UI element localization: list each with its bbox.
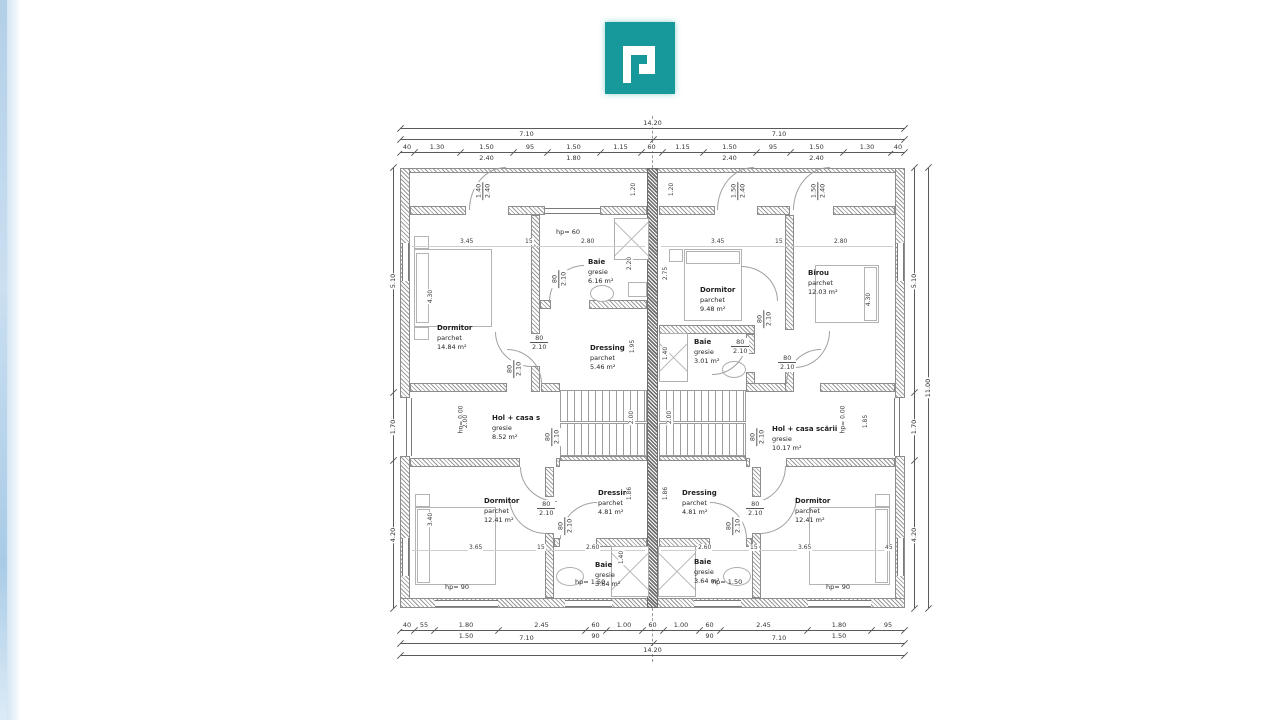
dim-interior: 1.20 <box>630 182 637 197</box>
door-size-label: 802.10 <box>755 310 773 328</box>
dim-interior: 15 <box>774 238 784 245</box>
room-label-dormitor: Dormitor parchet 12.41 m² <box>795 496 830 526</box>
dim-segment: 95 <box>756 152 790 153</box>
wall-segment <box>541 383 560 392</box>
dim-interior: 15 <box>749 544 759 551</box>
dim-segment: 60 <box>642 630 663 631</box>
dim-half-top: 7.10 <box>653 139 905 140</box>
dim-segment: 55 <box>414 630 434 631</box>
wall-segment <box>752 533 761 598</box>
door-size-label: 802.10 <box>550 270 568 288</box>
wall-segment <box>833 206 895 215</box>
dim-interior: 3.65 <box>797 544 812 551</box>
dim-interior: 1.86 <box>662 486 669 501</box>
wall-left-upper <box>400 168 410 398</box>
dim-segment: 95 <box>871 630 905 631</box>
wall-segment <box>410 458 520 467</box>
dim-interior: 1.40 <box>662 346 669 361</box>
dim-half-bottom: 7.10 <box>653 643 905 644</box>
nightstand-symbol <box>875 494 890 507</box>
dim-interior: 3.65 <box>468 544 483 551</box>
dim-segment: 1.30 <box>414 152 460 153</box>
shower-symbol <box>658 546 696 597</box>
wall-segment <box>746 383 786 392</box>
window-size-label: 1.502.40 <box>809 182 827 200</box>
wall-segment <box>659 206 715 215</box>
parapet-note: hp= 1.50 <box>712 578 742 586</box>
wall-segment <box>786 458 895 467</box>
construction-line <box>661 550 893 551</box>
dim-segment: 1.502.40 <box>460 152 513 153</box>
construction-line <box>412 550 645 551</box>
dim-segment: 1.502.40 <box>703 152 756 153</box>
dim-segment: 6090 <box>585 630 606 631</box>
dim-interior: 2.75 <box>662 266 669 281</box>
dim-segment: 1.00 <box>663 630 699 631</box>
dim-interior: 3.40 <box>427 512 434 527</box>
floor-plan: 14.20 7.10 7.10 40 1.30 1.502.40 95 1.50… <box>0 0 1280 720</box>
parapet-note: hp= 0.00 <box>839 405 846 435</box>
dim-interior: 2.60 <box>585 544 600 551</box>
room-label-dressing: Dressing parchet 4.81 m² <box>682 488 717 518</box>
parapet-note: hp= 90 <box>826 583 850 591</box>
dim-segment: 1.801.50 <box>434 630 498 631</box>
bay-window-symbol <box>894 398 900 456</box>
wall-right-lower <box>895 456 905 608</box>
wall-segment <box>554 538 560 547</box>
dim-half-bottom: 7.10 <box>400 643 653 644</box>
dim-interior: 1.95 <box>629 339 636 354</box>
window-symbol <box>435 600 498 607</box>
window-symbol <box>897 243 904 281</box>
room-label-hol: Hol + casa s gresie 8.52 m² <box>492 413 540 443</box>
door-size-label: 802.10 <box>746 500 764 518</box>
dim-interior: 2.80 <box>833 238 848 245</box>
wall-segment <box>659 456 746 461</box>
door-size-label: 802.10 <box>556 517 574 535</box>
wall-segment <box>410 383 507 392</box>
dim-interior: 4.30 <box>427 289 434 304</box>
window-symbol <box>694 600 741 607</box>
window-symbol <box>565 600 612 607</box>
window-symbol <box>897 538 904 576</box>
bed-pillow <box>686 251 740 264</box>
dim-segment: 1.15 <box>662 152 703 153</box>
door-arc <box>760 497 797 534</box>
nightstand-symbol <box>669 249 683 262</box>
room-label-dormitor: Dormitor parchet 14.84 m² <box>437 323 472 353</box>
dim-segment: 60 <box>641 152 662 153</box>
door-size-label: 802.10 <box>505 360 523 378</box>
nightstand-symbol <box>414 236 429 249</box>
window-size-label: 1.402.40 <box>474 182 492 200</box>
dim-interior: 15 <box>536 544 546 551</box>
door-size-label: 802.10 <box>537 500 555 518</box>
wall-segment <box>757 206 790 215</box>
wall-segment <box>508 206 545 215</box>
dim-segment: 4.20 <box>914 461 915 608</box>
bay-window-symbol <box>406 398 412 456</box>
construction-line <box>412 246 645 247</box>
dim-interior: 2.80 <box>580 238 595 245</box>
dim-interior: 2.20 <box>626 256 633 271</box>
dim-segment: 5.10 <box>914 168 915 393</box>
wall-segment <box>820 383 895 392</box>
nightstand-symbol <box>415 494 430 507</box>
window-size-label: 1.502.40 <box>729 182 747 200</box>
room-label-dormitor: Dormitor parchet 12.41 m² <box>484 496 519 526</box>
parapet-note: hp= 60 <box>556 228 580 236</box>
dim-segment: 1.501.80 <box>547 152 600 153</box>
nightstand-symbol <box>414 327 429 340</box>
window-symbol <box>402 538 409 576</box>
door-size-label: 802.10 <box>530 334 548 352</box>
wall-right-upper <box>895 168 905 398</box>
dim-half-top: 7.10 <box>400 139 653 140</box>
dim-overall-right: 11.00 <box>928 168 929 608</box>
dim-interior: 45 <box>884 544 894 551</box>
dim-segment: 1.801.50 <box>807 630 871 631</box>
parapet-note: hp= 90 <box>445 583 469 591</box>
dim-interior: 1.20 <box>668 182 675 197</box>
dim-overall-top: 14.20 <box>400 128 905 129</box>
dim-segment: 1.502.40 <box>790 152 843 153</box>
door-size-label: 802.10 <box>778 354 796 372</box>
dim-segment: 40 <box>891 152 905 153</box>
door-size-label: 802.10 <box>724 517 742 535</box>
wall-segment <box>545 533 554 598</box>
room-label-dressing: Dressing parchet 5.46 m² <box>590 343 625 373</box>
dim-segment: 6090 <box>699 630 720 631</box>
dim-interior: 4.30 <box>865 292 872 307</box>
window-symbol <box>545 208 600 214</box>
dim-interior: 2.60 <box>697 544 712 551</box>
door-arc <box>741 266 778 301</box>
dim-interior: 2.00 <box>628 410 635 425</box>
window-symbol <box>402 243 409 281</box>
room-label-baie: Baie gresie 6.16 m² <box>588 257 613 287</box>
dim-interior: 1.86 <box>626 486 633 501</box>
staircase-symbol <box>659 423 746 456</box>
sink-symbol <box>628 282 647 297</box>
dim-segment: 1.70 <box>393 393 394 461</box>
wall-segment <box>746 458 750 467</box>
room-label-hol: Hol + casa scării gresie 10.17 m² <box>772 424 837 454</box>
shower-symbol <box>614 218 649 260</box>
dim-interior: 15 <box>524 238 534 245</box>
dim-interior: 2.00 <box>666 410 673 425</box>
wall-segment <box>531 215 540 334</box>
dim-interior: 1.40 <box>618 550 625 565</box>
dim-interior: 3.45 <box>459 238 474 245</box>
dim-overall-bottom: 14.20 <box>400 655 905 656</box>
door-size-label: 802.10 <box>731 338 749 356</box>
room-label-dormitor: Dormitor parchet 9.48 m² <box>700 285 735 315</box>
wall-segment <box>785 215 794 330</box>
construction-line <box>661 246 893 247</box>
dim-segment: 5.10 <box>393 168 394 393</box>
toilet-symbol <box>590 285 614 302</box>
room-label-birou: Birou parchet 12.03 m² <box>808 268 838 298</box>
parapet-note: hp= 1.50 <box>575 578 605 586</box>
dim-segment: 95 <box>513 152 547 153</box>
dim-segment: 2.45 <box>720 630 807 631</box>
room-label-baie: Baie gresie 3.01 m² <box>694 337 719 367</box>
wall-left-lower <box>400 456 410 608</box>
window-symbol <box>808 600 871 607</box>
dim-segment: 1.00 <box>606 630 642 631</box>
wall-segment <box>560 456 647 461</box>
dim-interior: 1.85 <box>862 414 869 429</box>
parapet-note: 2.00 <box>462 414 469 429</box>
door-size-label: 802.10 <box>748 428 766 446</box>
staircase-symbol <box>560 423 647 456</box>
wall-segment <box>410 206 466 215</box>
dim-segment: 4.20 <box>393 461 394 608</box>
wall-segment <box>600 206 647 215</box>
door-size-label: 802.10 <box>543 428 561 446</box>
dim-segment: 1.70 <box>914 393 915 461</box>
dim-interior: 3.45 <box>710 238 725 245</box>
dim-segment: 2.45 <box>498 630 585 631</box>
dim-segment: 1.15 <box>600 152 641 153</box>
dim-segment: 1.30 <box>843 152 891 153</box>
